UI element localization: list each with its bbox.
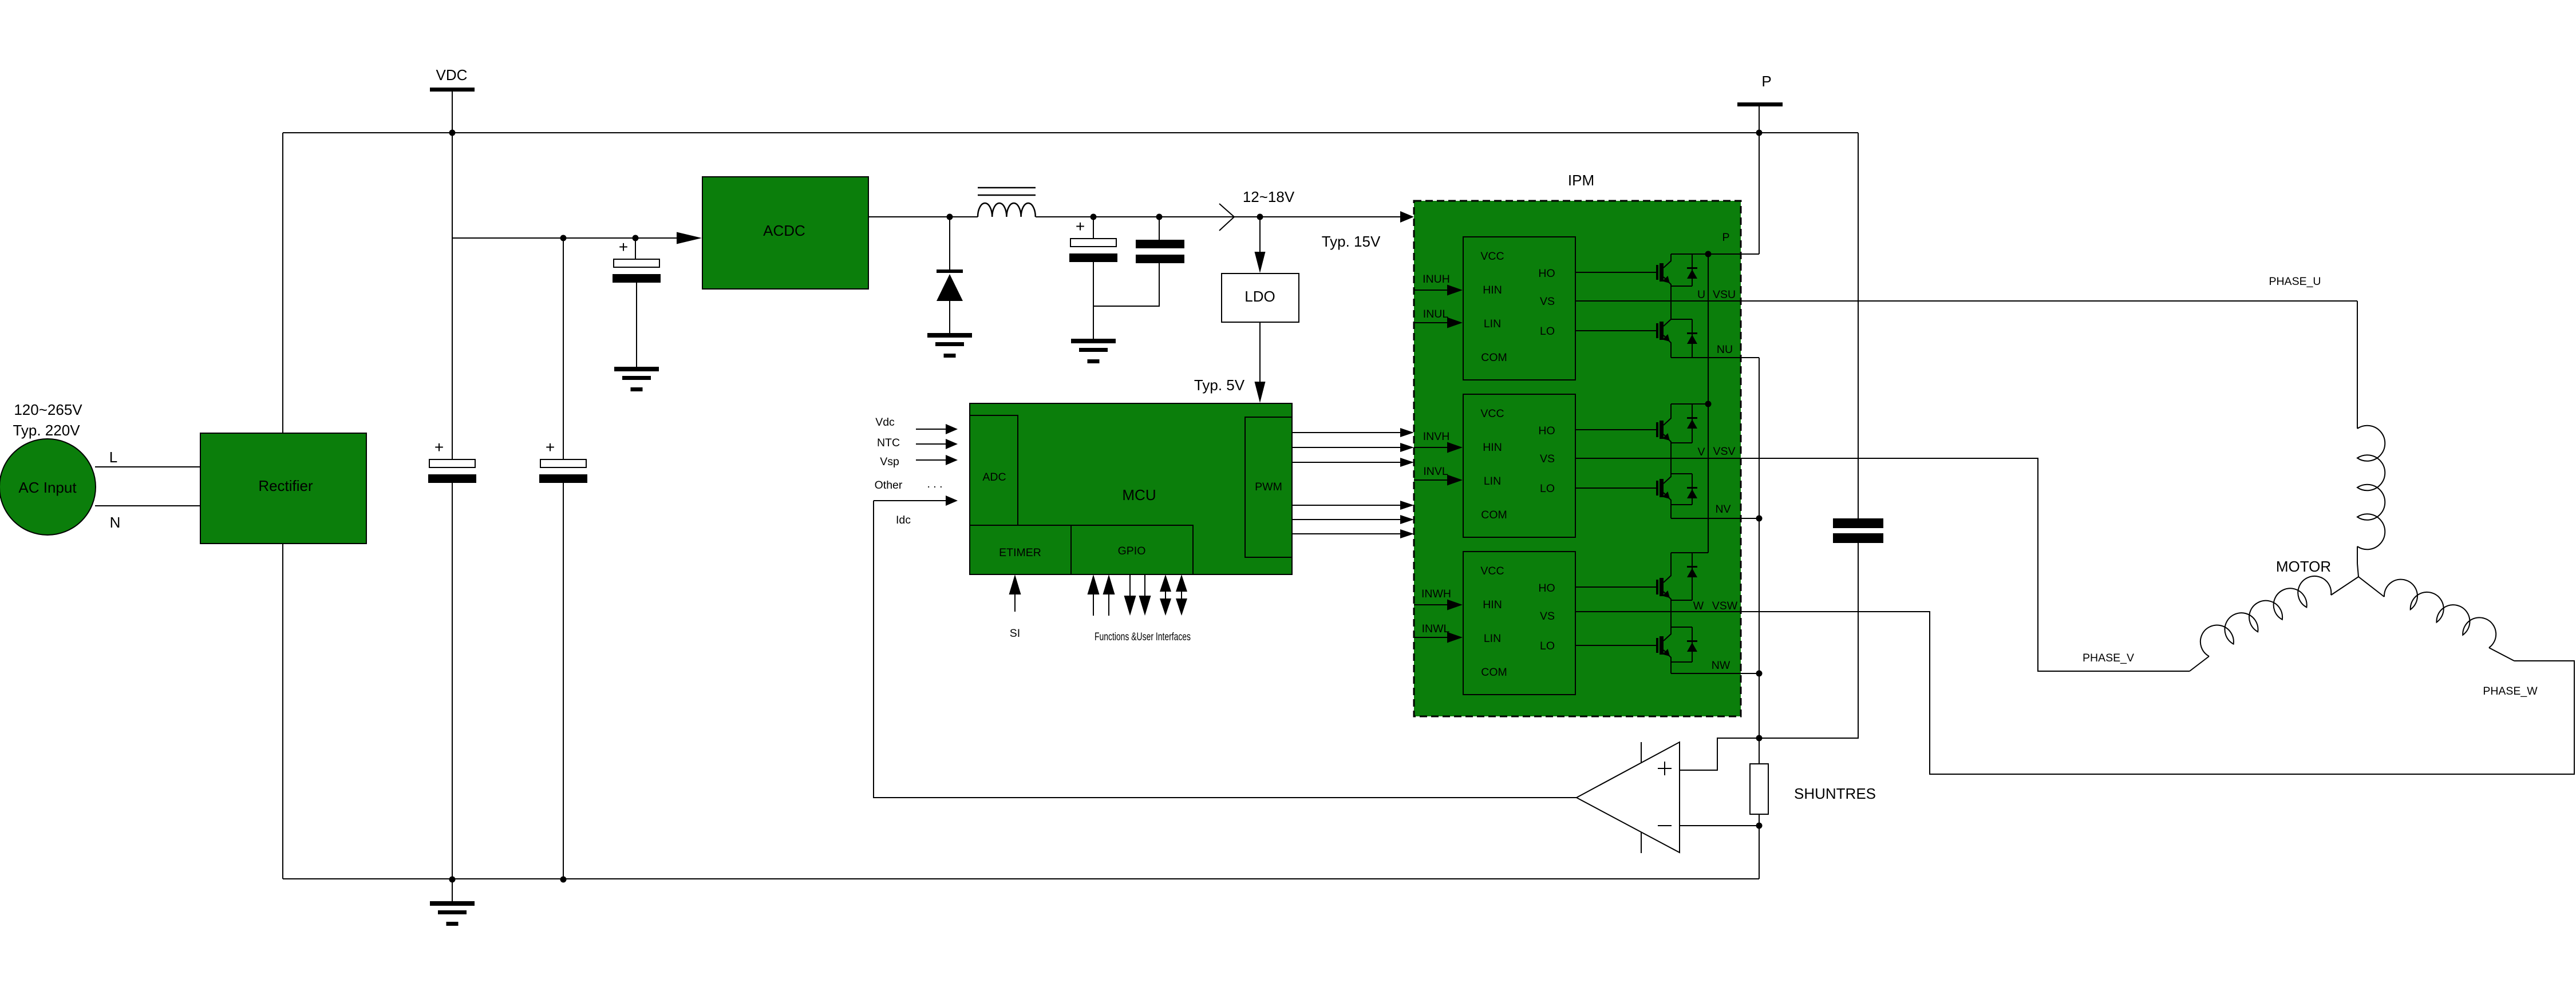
svg-text:INUL: INUL <box>1423 308 1449 320</box>
svg-text:HIN: HIN <box>1483 598 1502 611</box>
svg-text:PWM: PWM <box>1255 481 1282 493</box>
svg-text:VDC: VDC <box>436 66 468 84</box>
svg-text:HIN: HIN <box>1483 441 1502 454</box>
svg-text:SHUNTRES: SHUNTRES <box>1794 785 1876 802</box>
svg-text:. . .: . . . <box>927 478 942 490</box>
svg-text:SI: SI <box>1010 627 1020 640</box>
svg-text:VCC: VCC <box>1480 407 1504 420</box>
svg-text:VS: VS <box>1540 453 1555 465</box>
svg-text:Other: Other <box>875 479 903 491</box>
svg-text:N: N <box>110 514 121 531</box>
svg-text:LO: LO <box>1540 640 1555 652</box>
svg-text:L: L <box>109 449 117 466</box>
svg-text:PHASE_U: PHASE_U <box>2269 275 2321 288</box>
svg-text:PHASE_W: PHASE_W <box>2483 685 2538 697</box>
svg-text:IPM: IPM <box>1568 172 1594 189</box>
svg-text:ACDC: ACDC <box>763 222 805 239</box>
svg-text:VSW: VSW <box>1712 600 1738 612</box>
svg-text:Typ. 5V: Typ. 5V <box>1194 376 1245 394</box>
svg-text:MCU: MCU <box>1122 486 1156 504</box>
svg-text:LIN: LIN <box>1484 475 1501 487</box>
svg-text:LO: LO <box>1540 482 1555 495</box>
svg-text:+: + <box>546 438 555 456</box>
svg-text:+: + <box>619 238 628 256</box>
svg-text:COM: COM <box>1481 666 1507 679</box>
svg-text:12~18V: 12~18V <box>1243 188 1295 205</box>
svg-text:ETIMER: ETIMER <box>999 546 1041 559</box>
svg-text:COM: COM <box>1481 351 1507 364</box>
svg-text:ADC: ADC <box>982 471 1006 483</box>
svg-text:+: + <box>434 438 444 456</box>
svg-text:NV: NV <box>1715 503 1730 516</box>
svg-text:LIN: LIN <box>1484 632 1501 645</box>
svg-text:HO: HO <box>1538 425 1555 437</box>
svg-text:GPIO: GPIO <box>1118 545 1146 557</box>
svg-text:LO: LO <box>1540 325 1555 338</box>
svg-text:VSV: VSV <box>1713 445 1735 458</box>
svg-text:VS: VS <box>1540 610 1555 623</box>
svg-text:V: V <box>1697 446 1705 458</box>
svg-text:VCC: VCC <box>1480 565 1504 577</box>
svg-text:VSU: VSU <box>1713 288 1736 301</box>
svg-text:VCC: VCC <box>1480 250 1504 263</box>
svg-text:MOTOR: MOTOR <box>2276 558 2331 575</box>
svg-text:W: W <box>1693 600 1704 612</box>
svg-text:VS: VS <box>1540 295 1555 308</box>
svg-text:INVL: INVL <box>1423 465 1448 478</box>
svg-text:PHASE_V: PHASE_V <box>2083 652 2134 664</box>
svg-text:NW: NW <box>1712 659 1730 672</box>
svg-text:HO: HO <box>1538 267 1555 280</box>
svg-text:U: U <box>1697 288 1705 301</box>
svg-text:INUH: INUH <box>1423 273 1450 286</box>
svg-text:Vsp: Vsp <box>880 455 899 468</box>
svg-text:Typ. 15V: Typ. 15V <box>1322 233 1381 250</box>
svg-text:INWL: INWL <box>1422 623 1450 635</box>
svg-text:LDO: LDO <box>1244 288 1275 305</box>
svg-text:120~265V: 120~265V <box>14 401 82 418</box>
svg-text:Vdc: Vdc <box>875 416 895 429</box>
svg-text:NU: NU <box>1717 343 1733 356</box>
svg-text:NTC: NTC <box>877 437 900 449</box>
svg-text:P: P <box>1761 73 1771 90</box>
svg-text:AC Input: AC Input <box>18 479 77 496</box>
svg-text:INVH: INVH <box>1423 430 1450 443</box>
svg-text:HIN: HIN <box>1483 284 1502 296</box>
svg-text:LIN: LIN <box>1484 318 1501 330</box>
svg-text:Functions &User Interfaces: Functions &User Interfaces <box>1095 631 1191 643</box>
svg-text:COM: COM <box>1481 509 1507 521</box>
svg-text:INWH: INWH <box>1421 588 1451 600</box>
svg-text:+: + <box>1076 217 1085 235</box>
svg-text:Idc: Idc <box>896 514 911 526</box>
svg-text:Rectifier: Rectifier <box>258 477 313 494</box>
svg-text:HO: HO <box>1538 582 1555 594</box>
svg-text:Typ. 220V: Typ. 220V <box>13 422 80 439</box>
svg-text:P: P <box>1722 231 1729 244</box>
